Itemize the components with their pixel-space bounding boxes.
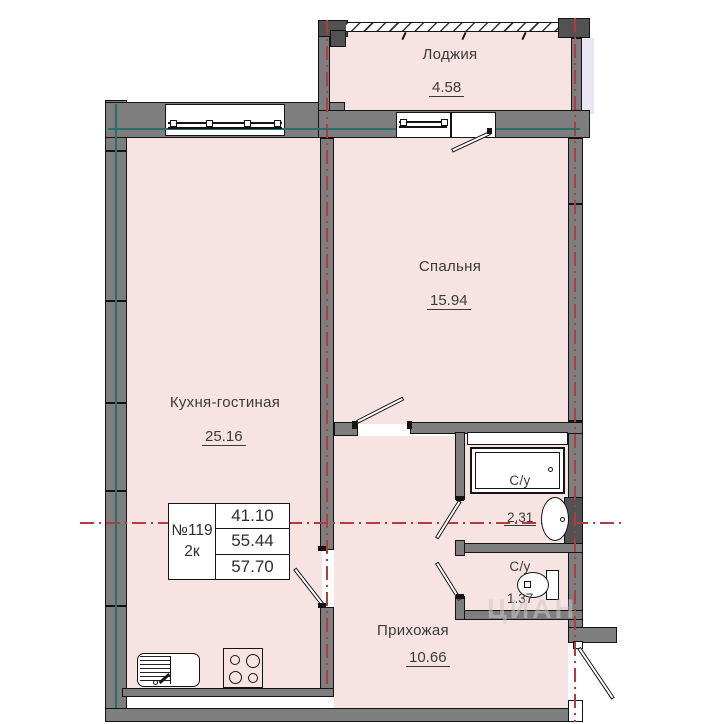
room-area-kitchen: 25.16: [202, 428, 246, 446]
unit-number: №119: [171, 521, 212, 541]
unit-type: 2к: [184, 542, 199, 562]
door-jamb: [352, 421, 357, 429]
door-jamb: [318, 603, 326, 608]
room-label-bathroom-2: С/у: [500, 559, 540, 574]
entrance-door-leaf: [577, 647, 614, 700]
wall-kitchen-bottom: [122, 688, 334, 697]
watermark: ЦИАН: [487, 594, 577, 625]
wall-loggia-top-hatched: [346, 22, 560, 32]
window-mullion: [244, 120, 251, 127]
window-mullion: [441, 119, 448, 126]
door-jamb: [318, 546, 326, 551]
utility-line-top-wall-right: [496, 128, 580, 130]
loggia-corner-block-left-step: [330, 30, 346, 47]
room-label-bathroom-1: С/у: [500, 473, 540, 488]
door-jamb: [407, 421, 412, 429]
stove-burner: [229, 671, 242, 684]
unit-area-value-1: 41.10: [216, 504, 289, 529]
stove-burner: [246, 654, 260, 668]
toilet-button: [524, 581, 531, 588]
bathroom-duct-niche: [467, 432, 568, 445]
door-jamb: [487, 128, 492, 134]
door-jamb: [456, 496, 464, 501]
window-mullion: [206, 120, 213, 127]
room-fill-bedroom: [334, 138, 568, 424]
unit-info-table: №119 2к 41.10 55.44 57.70: [168, 503, 290, 580]
unit-area-value-2: 55.44: [216, 529, 289, 554]
room-label-loggia: Лоджия: [385, 46, 515, 63]
axis-line-vertical-mid: [326, 20, 328, 688]
room-area-loggia: 4.58: [429, 79, 464, 97]
window-mullion: [400, 119, 407, 126]
room-fill-loggia: [330, 31, 571, 112]
window-frame-line: [168, 127, 282, 129]
room-area-bedroom: 15.94: [427, 292, 471, 310]
outside-strip: [582, 38, 594, 114]
room-fill-kitchen: [127, 138, 322, 688]
wall-bathroom-left-1: [455, 432, 465, 500]
unit-info-left-cell: №119 2к: [169, 504, 216, 579]
door-jamb: [456, 594, 464, 599]
window-frame-line: [399, 126, 447, 128]
utility-line-left-wall: [115, 104, 117, 708]
unit-area-total: 57.70: [216, 555, 289, 579]
stove: [223, 648, 263, 688]
room-area-hallway: 10.66: [406, 649, 450, 667]
room-area-bathroom-1: 2.31: [504, 510, 536, 526]
kitchen-sink: [137, 653, 200, 687]
room-label-bedroom: Спальня: [400, 258, 500, 275]
room-label-hallway: Прихожая: [353, 622, 473, 639]
window-mullion: [170, 120, 177, 127]
wall-bottom-outer: [105, 708, 583, 722]
window-mullion: [274, 120, 281, 127]
unit-info-values: 41.10 55.44 57.70: [216, 504, 289, 579]
window-divider: [450, 112, 452, 138]
bathtub-faucet-dot: [548, 467, 553, 472]
wall-bathroom-left-2: [455, 540, 465, 556]
room-label-kitchen: Кухня-гостиная: [125, 394, 325, 411]
kitchen-sink-faucet-dot: [153, 680, 158, 685]
stove-burner: [230, 655, 240, 665]
window-frame-line: [168, 122, 282, 124]
wall-bathroom-divider: [455, 543, 583, 553]
floor-plan: Лоджия 4.58 Спальня 15.94 Кухня-гостиная…: [0, 0, 724, 724]
sink-faucet-dot: [560, 517, 565, 522]
stove-burner: [248, 673, 258, 683]
wall-loggia-right: [571, 38, 582, 114]
kitchen-window: [165, 104, 285, 136]
